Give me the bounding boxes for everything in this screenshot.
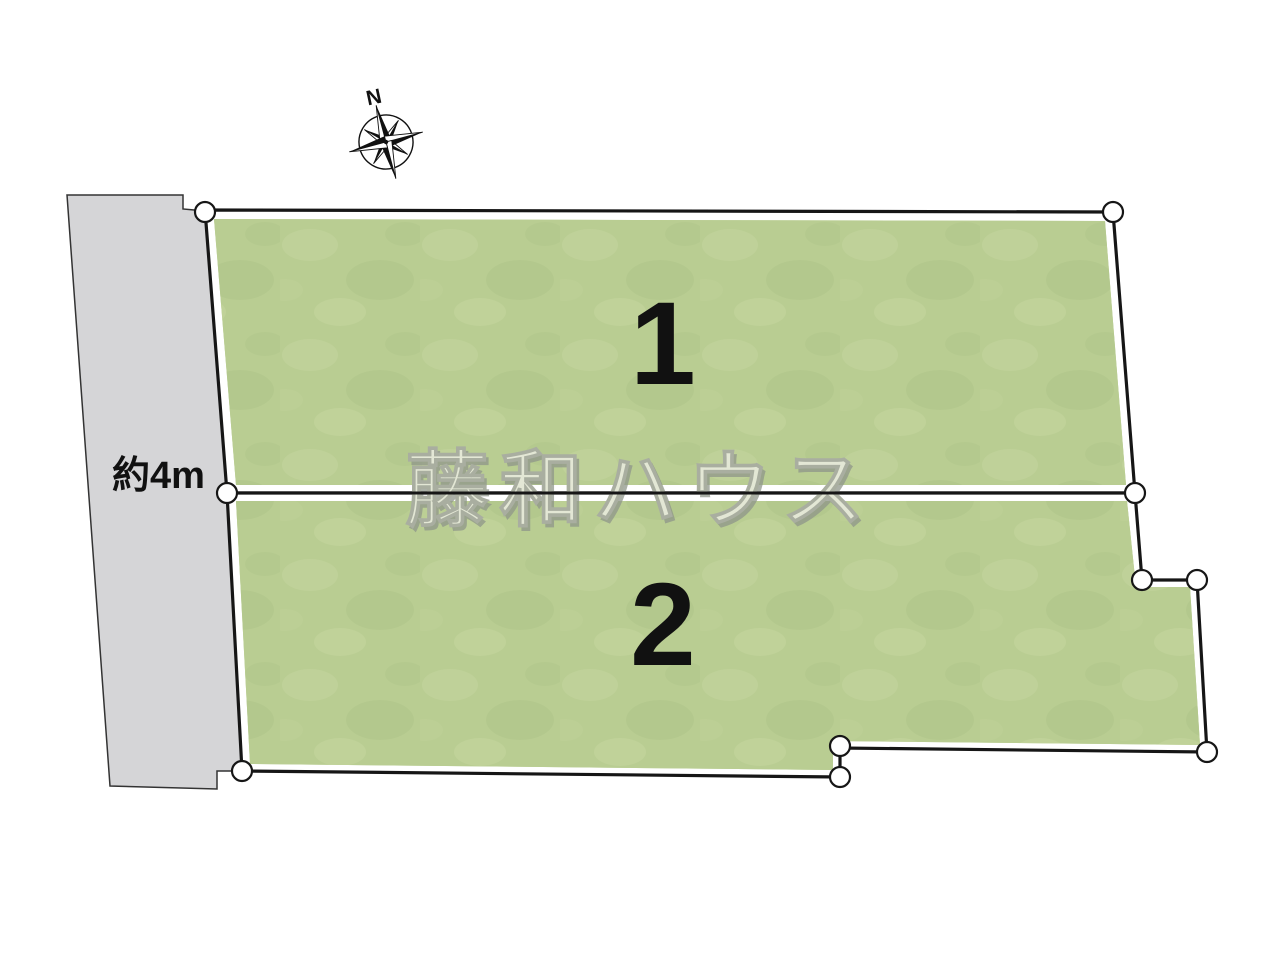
- boundary-vertex-marker: [1197, 742, 1217, 762]
- plot-1-label: 1: [630, 278, 696, 410]
- boundary-vertex-marker: [1125, 483, 1145, 503]
- boundary-vertex-marker: [1187, 570, 1207, 590]
- boundary-vertex-marker: [830, 767, 850, 787]
- boundary-vertex-marker: [195, 202, 215, 222]
- road-width-label: 約4m: [112, 455, 205, 497]
- boundary-vertex-marker: [232, 761, 252, 781]
- compass-north-label: N: [364, 85, 384, 111]
- plot-2-label: 2: [630, 559, 696, 691]
- boundary-vertex-marker: [1103, 202, 1123, 222]
- watermark-text: 藤和ハウス: [405, 443, 875, 537]
- boundary-vertex-marker: [830, 736, 850, 756]
- plot-2-texture: [236, 501, 1200, 770]
- land-plot-diagram: 藤和ハウス 藤和ハウス 1 2 約4m: [0, 0, 1280, 960]
- boundary-vertex-marker: [1132, 570, 1152, 590]
- compass-rose-icon: N: [339, 85, 432, 189]
- boundary-vertex-marker: [217, 483, 237, 503]
- plot-map-canvas: 藤和ハウス 藤和ハウス 1 2 約4m: [0, 0, 1280, 960]
